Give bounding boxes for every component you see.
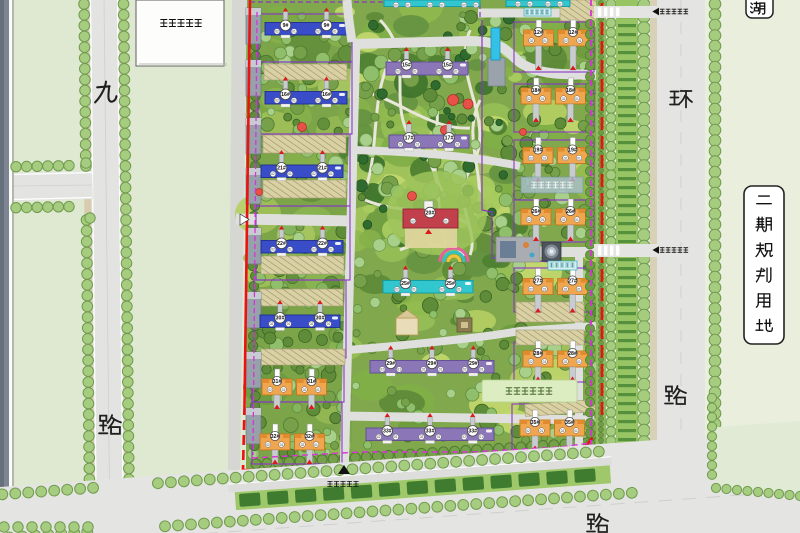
svg-text:02: 02	[312, 172, 316, 176]
svg-text:25#: 25#	[401, 281, 410, 287]
svg-text:01: 01	[543, 156, 547, 160]
svg-text:02: 02	[562, 97, 566, 101]
svg-text:29#: 29#	[428, 361, 437, 367]
svg-text:02: 02	[564, 39, 568, 43]
svg-text:01: 01	[528, 2, 532, 6]
svg-text:25#: 25#	[446, 281, 455, 287]
svg-text:02: 02	[529, 360, 533, 364]
svg-text:01: 01	[397, 368, 401, 372]
svg-text:02: 02	[411, 219, 415, 223]
svg-text:01: 01	[578, 39, 582, 43]
svg-text:02: 02	[564, 287, 568, 291]
svg-text:02: 02	[380, 368, 384, 372]
svg-text:21#: 21#	[318, 166, 327, 172]
svg-text:9#: 9#	[324, 23, 330, 29]
svg-text:12#: 12#	[534, 30, 543, 36]
svg-text:01: 01	[282, 388, 286, 392]
svg-text:15#: 15#	[402, 63, 411, 69]
svg-text:01: 01	[437, 435, 441, 439]
svg-text:31#: 31#	[307, 379, 316, 385]
svg-text:31#: 31#	[273, 379, 282, 385]
svg-text:16#: 16#	[281, 92, 290, 98]
svg-text:01: 01	[543, 287, 547, 291]
svg-text:22#: 22#	[318, 241, 327, 247]
svg-text:01: 01	[316, 388, 320, 392]
svg-text:02: 02	[420, 435, 424, 439]
svg-text:01: 01	[292, 30, 296, 34]
svg-text:02: 02	[462, 435, 466, 439]
svg-text:01: 01	[457, 288, 461, 292]
svg-text:02: 02	[527, 97, 531, 101]
svg-text:02: 02	[422, 368, 426, 372]
svg-text:17#: 17#	[405, 136, 414, 142]
svg-text:01: 01	[456, 143, 460, 147]
svg-text:01: 01	[288, 172, 292, 176]
svg-text:02: 02	[462, 3, 466, 7]
svg-text:02: 02	[316, 30, 320, 34]
svg-text:01: 01	[412, 288, 416, 292]
svg-text:35#: 35#	[531, 420, 540, 426]
svg-text:02: 02	[529, 287, 533, 291]
svg-text:01: 01	[543, 360, 547, 364]
svg-text:02: 02	[275, 30, 279, 34]
svg-text:15#: 15#	[443, 63, 452, 69]
svg-text:01: 01	[541, 97, 545, 101]
svg-text:02: 02	[271, 248, 275, 252]
svg-text:02: 02	[266, 443, 270, 447]
svg-text:01: 01	[574, 429, 578, 433]
svg-text:02: 02	[395, 288, 399, 292]
svg-text:01: 01	[413, 70, 417, 74]
svg-text:30#: 30#	[316, 316, 325, 322]
svg-text:17#: 17#	[445, 136, 454, 142]
svg-text:01: 01	[577, 156, 581, 160]
svg-text:26#: 26#	[566, 209, 575, 215]
svg-text:12#: 12#	[569, 30, 578, 36]
svg-text:33#: 33#	[426, 429, 435, 435]
svg-text:02: 02	[275, 99, 279, 103]
svg-text:01: 01	[329, 248, 333, 252]
svg-text:01: 01	[333, 99, 337, 103]
svg-text:02: 02	[463, 368, 467, 372]
svg-text:18#: 18#	[566, 88, 575, 94]
svg-text:29#: 29#	[386, 361, 395, 367]
svg-text:9#: 9#	[283, 23, 289, 29]
svg-text:01: 01	[454, 70, 458, 74]
svg-text:20#: 20#	[426, 210, 435, 216]
svg-text:02: 02	[428, 3, 432, 7]
svg-text:28#: 28#	[534, 351, 543, 357]
svg-text:27#: 27#	[534, 278, 543, 284]
svg-text:02: 02	[546, 2, 550, 6]
svg-text:02: 02	[303, 388, 307, 392]
svg-text:01: 01	[288, 248, 292, 252]
svg-text:02: 02	[529, 156, 533, 160]
svg-text:21#: 21#	[277, 166, 286, 172]
svg-text:02: 02	[440, 288, 444, 292]
svg-text:02: 02	[310, 322, 314, 326]
svg-text:01: 01	[394, 435, 398, 439]
svg-text:02: 02	[312, 248, 316, 252]
svg-text:01: 01	[540, 429, 544, 433]
svg-text:01: 01	[558, 2, 562, 6]
svg-text:18#: 18#	[532, 88, 541, 94]
svg-text:22#: 22#	[277, 241, 286, 247]
svg-text:01: 01	[575, 218, 579, 222]
svg-text:02: 02	[270, 322, 274, 326]
svg-text:01: 01	[474, 3, 478, 7]
svg-text:02: 02	[516, 2, 520, 6]
svg-text:01: 01	[287, 322, 291, 326]
svg-text:02: 02	[439, 143, 443, 147]
svg-text:02: 02	[396, 70, 400, 74]
svg-text:02: 02	[301, 443, 305, 447]
svg-text:01: 01	[543, 39, 547, 43]
svg-text:32#: 32#	[271, 434, 280, 440]
svg-text:01: 01	[314, 443, 318, 447]
svg-text:02: 02	[316, 99, 320, 103]
svg-text:01: 01	[480, 368, 484, 372]
svg-text:01: 01	[575, 97, 579, 101]
svg-text:01: 01	[440, 3, 444, 7]
svg-text:01: 01	[577, 287, 581, 291]
svg-text:01: 01	[280, 443, 284, 447]
svg-text:30#: 30#	[276, 316, 285, 322]
svg-text:28#: 28#	[568, 351, 577, 357]
svg-text:19#: 19#	[568, 147, 577, 153]
svg-text:01: 01	[577, 360, 581, 364]
svg-text:27#: 27#	[568, 278, 577, 284]
svg-text:02: 02	[530, 39, 534, 43]
svg-text:02: 02	[562, 218, 566, 222]
svg-text:01: 01	[416, 143, 420, 147]
svg-text:02: 02	[526, 429, 530, 433]
svg-text:02: 02	[564, 156, 568, 160]
svg-text:29#: 29#	[469, 361, 478, 367]
svg-text:35#: 35#	[565, 420, 574, 426]
svg-text:02: 02	[561, 429, 565, 433]
svg-text:32#: 32#	[305, 434, 314, 440]
svg-text:02: 02	[564, 360, 568, 364]
svg-text:02: 02	[271, 172, 275, 176]
svg-text:02: 02	[399, 143, 403, 147]
svg-text:02: 02	[268, 388, 272, 392]
svg-text:01: 01	[327, 322, 331, 326]
svg-text:01: 01	[333, 30, 337, 34]
svg-text:02: 02	[527, 218, 531, 222]
svg-text:01: 01	[439, 368, 443, 372]
svg-text:01: 01	[292, 99, 296, 103]
svg-text:01: 01	[444, 219, 448, 223]
svg-text:26#: 26#	[532, 209, 541, 215]
svg-text:01: 01	[541, 218, 545, 222]
svg-text:01: 01	[329, 172, 333, 176]
svg-text:01: 01	[406, 3, 410, 7]
svg-text:02: 02	[377, 435, 381, 439]
svg-text:19#: 19#	[534, 147, 543, 153]
svg-text:01: 01	[479, 435, 483, 439]
svg-text:33#: 33#	[468, 429, 477, 435]
svg-text:33#: 33#	[383, 429, 392, 435]
svg-text:02: 02	[437, 70, 441, 74]
svg-text:02: 02	[394, 3, 398, 7]
svg-text:16#: 16#	[322, 92, 331, 98]
